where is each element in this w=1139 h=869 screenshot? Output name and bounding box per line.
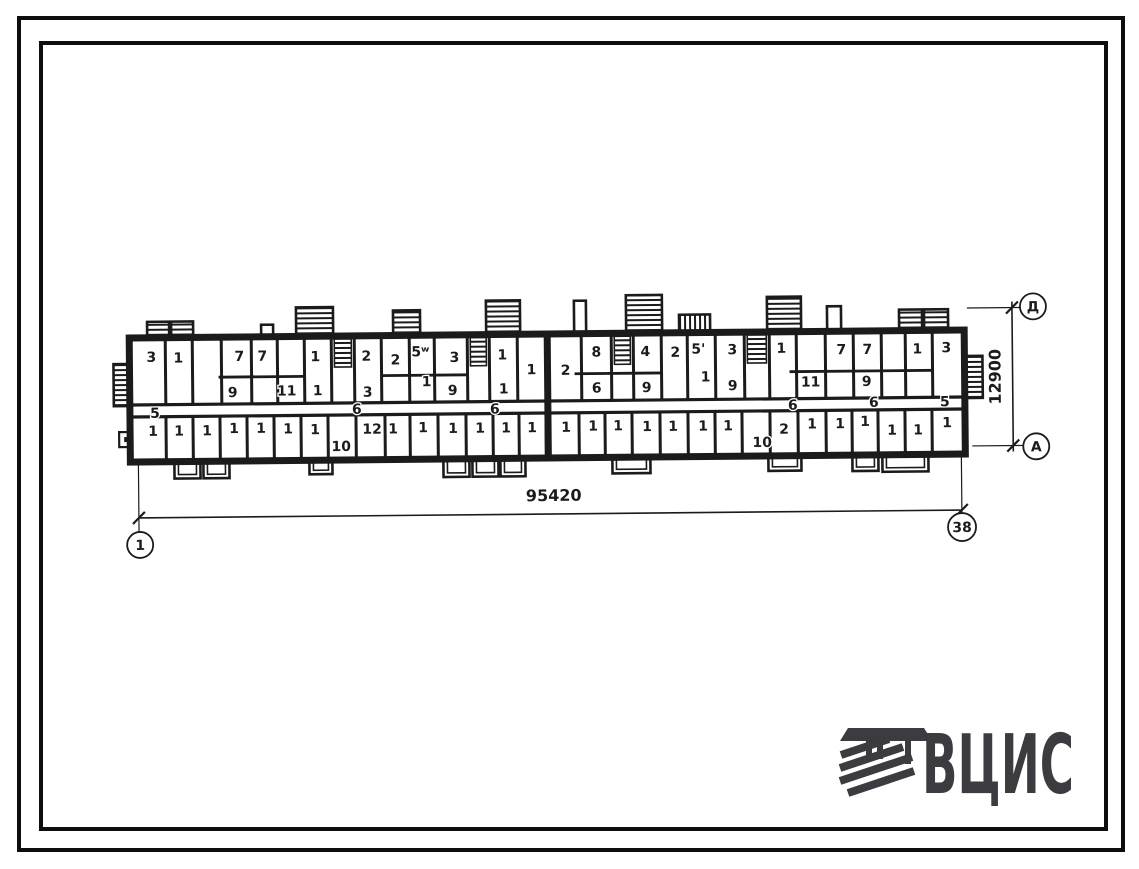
stairwell [747, 335, 766, 363]
room-number: 11 [277, 383, 297, 399]
room-number: 1 [913, 422, 923, 438]
logo-text: ВЦИС [922, 718, 1074, 813]
room-number: 2 [561, 363, 571, 379]
room-number: 7 [836, 342, 846, 358]
room-number: 2 [670, 345, 680, 361]
room-number: 9 [228, 385, 238, 401]
room-number: 5ʷ [411, 344, 429, 360]
axis-marker-1-label: 1 [135, 538, 145, 554]
room-number: 1 [174, 424, 184, 440]
room-number: 2 [779, 422, 789, 438]
room-number: 3 [727, 342, 737, 358]
room-number: 8 [591, 345, 601, 361]
room-number: 12 [362, 422, 382, 438]
room-number: 1 [698, 418, 708, 434]
room-number: 1 [497, 347, 507, 363]
room-number: 1 [835, 416, 845, 432]
floor-plan-sheet: 31771225ʷ31128425'3177139111319169191195… [0, 0, 1139, 869]
axis-marker-38-label: 38 [952, 520, 972, 536]
room-number: 1 [668, 419, 678, 435]
room-number: 10 [331, 439, 351, 455]
dimension-width-label: 12900 [985, 349, 1005, 405]
room-number: 1 [256, 421, 266, 437]
room-number: 6 [490, 401, 500, 417]
stairwell [334, 339, 351, 367]
room-number: 5 [150, 406, 160, 422]
floor-plan: 31771225ʷ31128425'3177139111319169191195… [113, 292, 984, 480]
room-number: 1 [527, 420, 537, 436]
room-number: 1 [475, 421, 485, 437]
room-number: 1 [148, 424, 158, 440]
room-number: 5 [940, 394, 950, 410]
dimension-length-label: 95420 [526, 486, 582, 506]
stairwell [470, 338, 486, 366]
room-number: 1 [283, 421, 293, 437]
stairwell [614, 336, 630, 364]
room-number: 1 [887, 423, 897, 439]
room-number: 2 [361, 349, 371, 365]
room-number: 9 [728, 378, 738, 394]
room-number: 1 [642, 419, 652, 435]
room-number: 7 [257, 349, 267, 365]
room-number: 1 [912, 341, 922, 357]
room-number: 7 [234, 349, 244, 365]
room-number: 9 [642, 380, 652, 396]
axis-marker-d-label: Д [1027, 299, 1040, 315]
room-number: 1 [527, 362, 537, 378]
room-number: 1 [422, 374, 432, 390]
room-number: 1 [173, 351, 183, 367]
logo-emblem-icon [840, 728, 932, 793]
room-number: 3 [146, 350, 156, 366]
room-number: 9 [862, 374, 872, 390]
room-number: 4 [640, 344, 650, 360]
room-number: 1 [723, 418, 733, 434]
room-number: 1 [501, 420, 511, 436]
room-number: 1 [418, 420, 428, 436]
room-number: 3 [941, 340, 951, 356]
room-number: 1 [310, 422, 320, 438]
room-number: 11 [801, 374, 821, 390]
room-number: 6 [352, 402, 362, 418]
room-number: 1 [701, 369, 711, 385]
room-number: 7 [862, 342, 872, 358]
room-number: 5' [691, 342, 705, 358]
room-number: 10 [752, 435, 772, 451]
room-number: 6 [592, 381, 602, 397]
room-number: 9 [448, 383, 458, 399]
room-number: 1 [588, 419, 598, 435]
room-number: 1 [776, 341, 786, 357]
room-number: 1 [229, 421, 239, 437]
room-number: 3 [449, 350, 459, 366]
room-number: 1 [388, 421, 398, 437]
room-number: 1 [561, 420, 571, 436]
room-number: 1 [313, 383, 323, 399]
room-number: 1 [613, 418, 623, 434]
room-number: 1 [499, 381, 509, 397]
room-number: 1 [807, 416, 817, 432]
room-number: 1 [202, 423, 212, 439]
room-number: 3 [363, 385, 373, 401]
room-number: 1 [942, 415, 952, 431]
logo: ВЦИС [840, 718, 1074, 813]
room-number: 1 [860, 414, 870, 430]
room-number: 6 [869, 395, 879, 411]
room-number: 2 [390, 352, 400, 368]
room-number: 6 [788, 398, 798, 414]
room-number: 1 [310, 349, 320, 365]
axis-marker-a-label: А [1031, 439, 1042, 455]
room-number: 1 [448, 421, 458, 437]
